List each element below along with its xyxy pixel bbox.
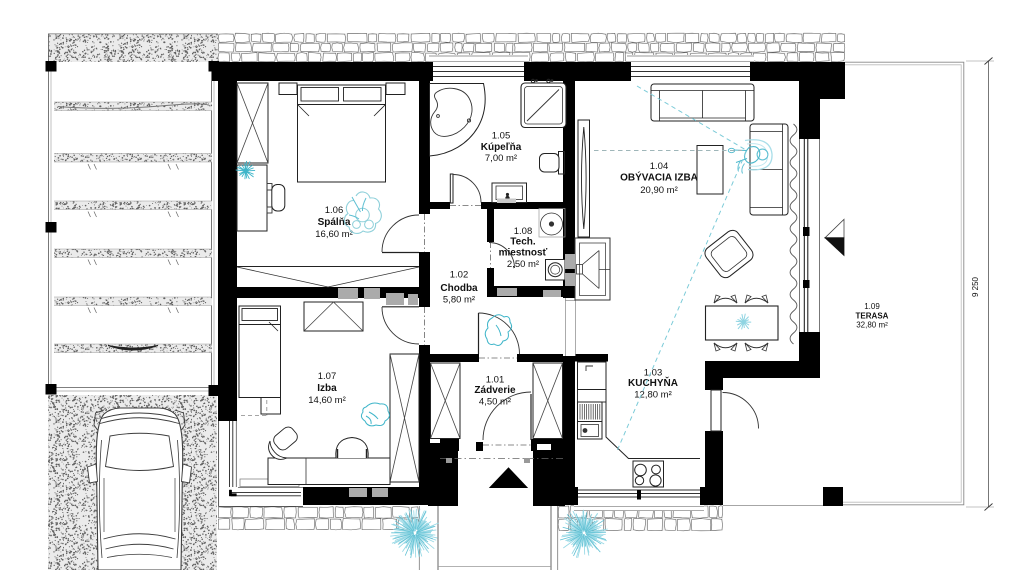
svg-text:Tech.: Tech.	[510, 237, 536, 248]
svg-text:5,80 m²: 5,80 m²	[443, 295, 475, 306]
svg-text:Kúpeľňa: Kúpeľňa	[481, 142, 522, 153]
svg-text:miestnosť: miestnosť	[499, 248, 548, 259]
svg-text:9 250: 9 250	[971, 276, 980, 297]
svg-text:1.04: 1.04	[650, 161, 669, 172]
svg-text:4,50 m²: 4,50 m²	[479, 397, 511, 408]
svg-text:32,80 m²: 32,80 m²	[856, 321, 888, 330]
svg-text:16,60 m²: 16,60 m²	[315, 229, 353, 240]
svg-text:1.09: 1.09	[864, 302, 880, 311]
svg-text:20,90 m²: 20,90 m²	[640, 185, 678, 196]
svg-text:Spálňa: Spálňa	[318, 217, 351, 228]
svg-text:Chodba: Chodba	[440, 283, 478, 294]
svg-text:OBÝVACIA IZBA: OBÝVACIA IZBA	[620, 171, 698, 184]
svg-text:1.03: 1.03	[644, 368, 663, 379]
svg-text:Izba: Izba	[317, 383, 337, 394]
svg-text:KUCHYŇA: KUCHYŇA	[628, 376, 678, 389]
svg-text:2,50 m²: 2,50 m²	[507, 259, 539, 270]
svg-text:1.01: 1.01	[486, 375, 505, 386]
svg-text:12,80 m²: 12,80 m²	[634, 390, 672, 401]
svg-text:TERASA: TERASA	[856, 312, 889, 321]
svg-text:1.07: 1.07	[318, 371, 337, 382]
svg-text:1.06: 1.06	[325, 205, 344, 216]
svg-text:1.08: 1.08	[514, 226, 533, 237]
svg-text:1.02: 1.02	[450, 270, 469, 281]
svg-text:Zádverie: Zádverie	[474, 385, 516, 396]
svg-text:1.05: 1.05	[492, 131, 511, 142]
svg-text:7,00 m²: 7,00 m²	[485, 153, 517, 164]
svg-text:14,60 m²: 14,60 m²	[308, 395, 346, 406]
